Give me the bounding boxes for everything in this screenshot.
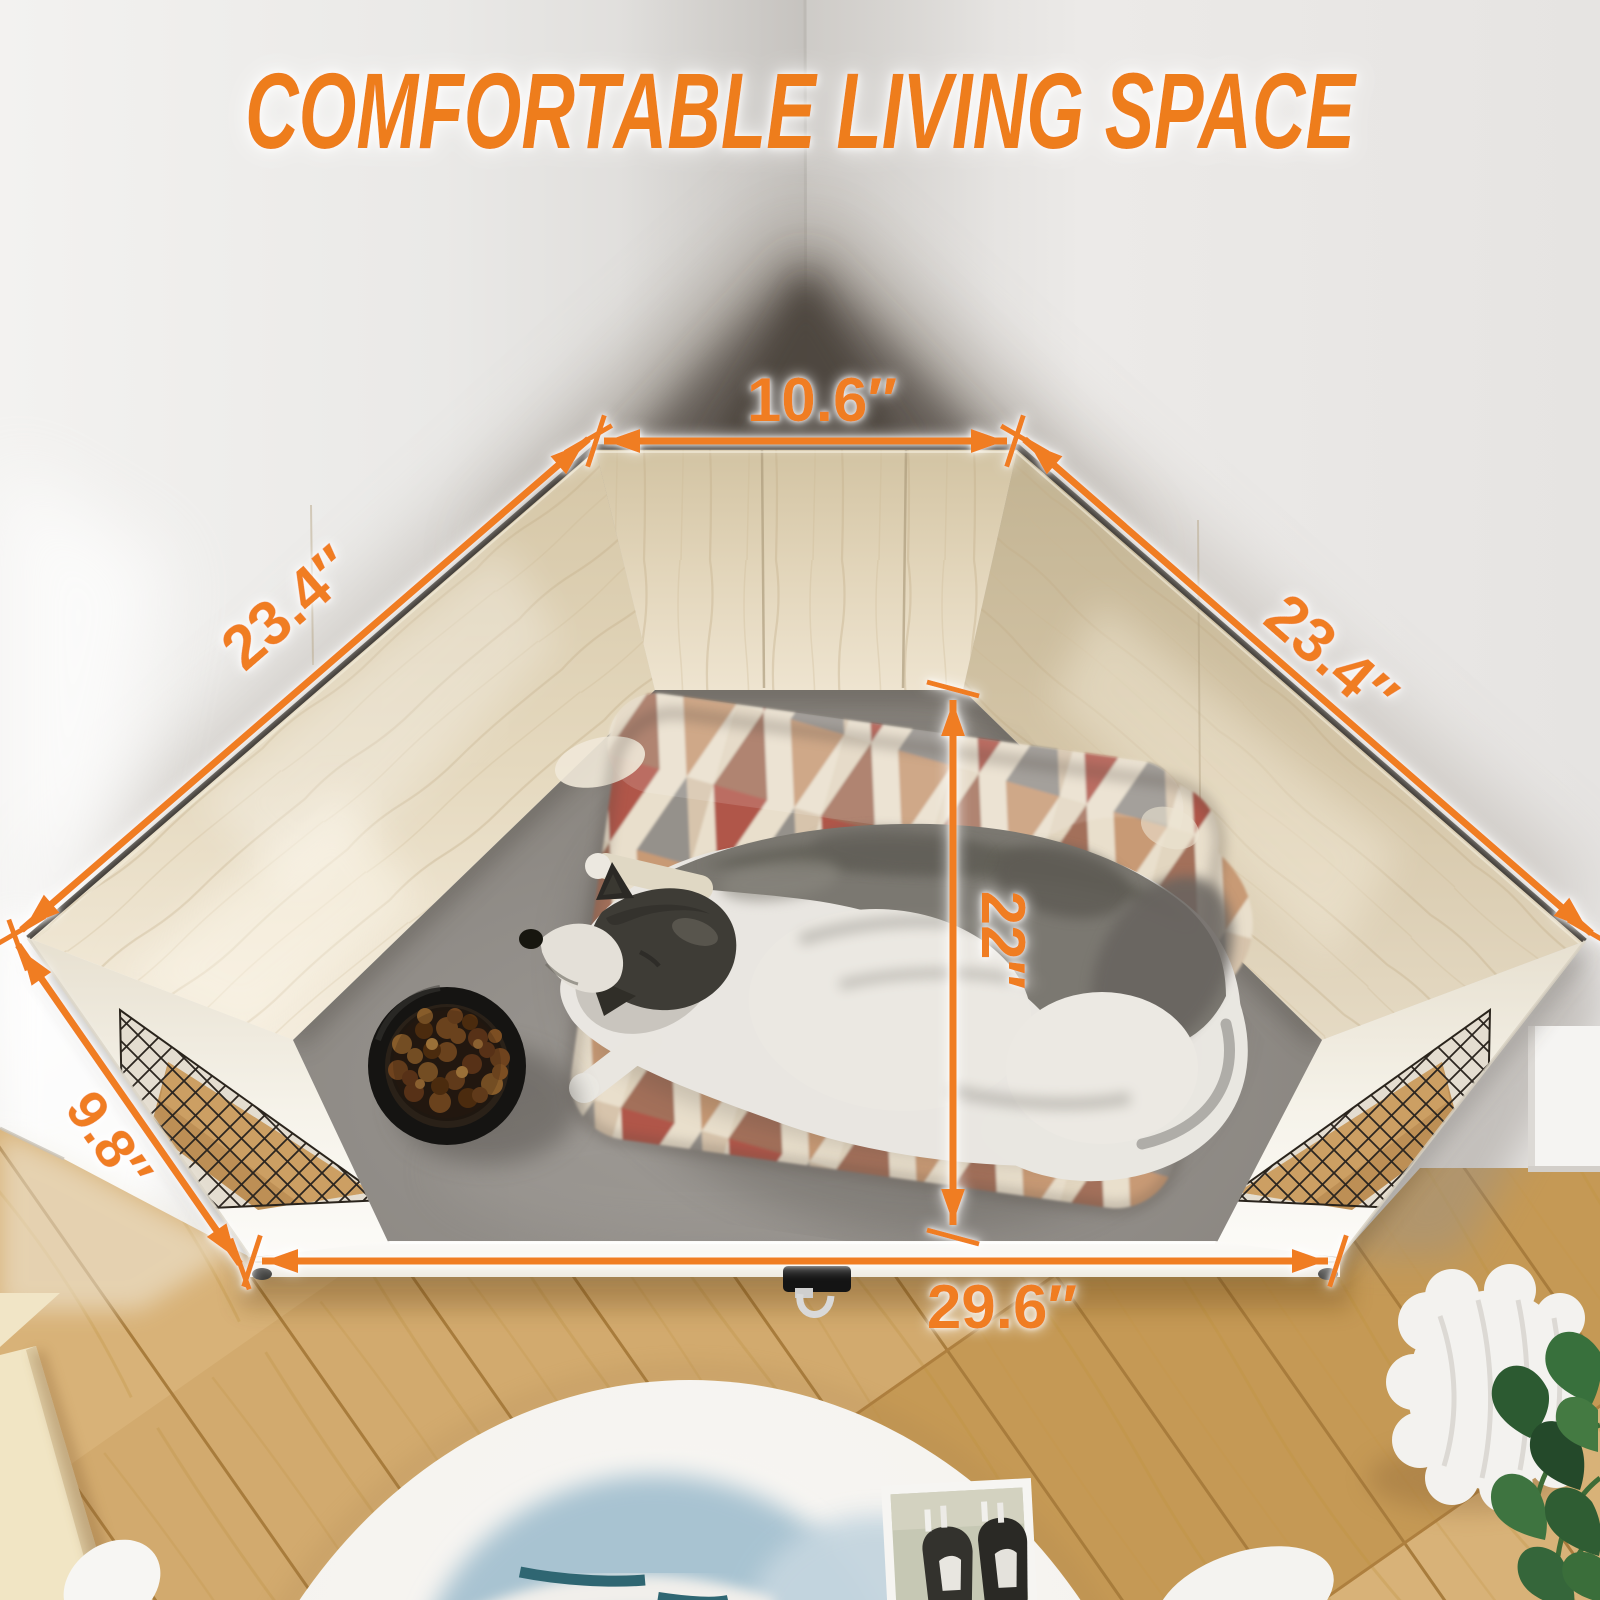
svg-text:COMFORTABLE LIVING SPACE: COMFORTABLE LIVING SPACE [245, 50, 1357, 171]
svg-text:10.6″: 10.6″ [747, 366, 897, 435]
svg-text:22″: 22″ [968, 891, 1037, 990]
svg-text:29.6″: 29.6″ [927, 1273, 1077, 1342]
